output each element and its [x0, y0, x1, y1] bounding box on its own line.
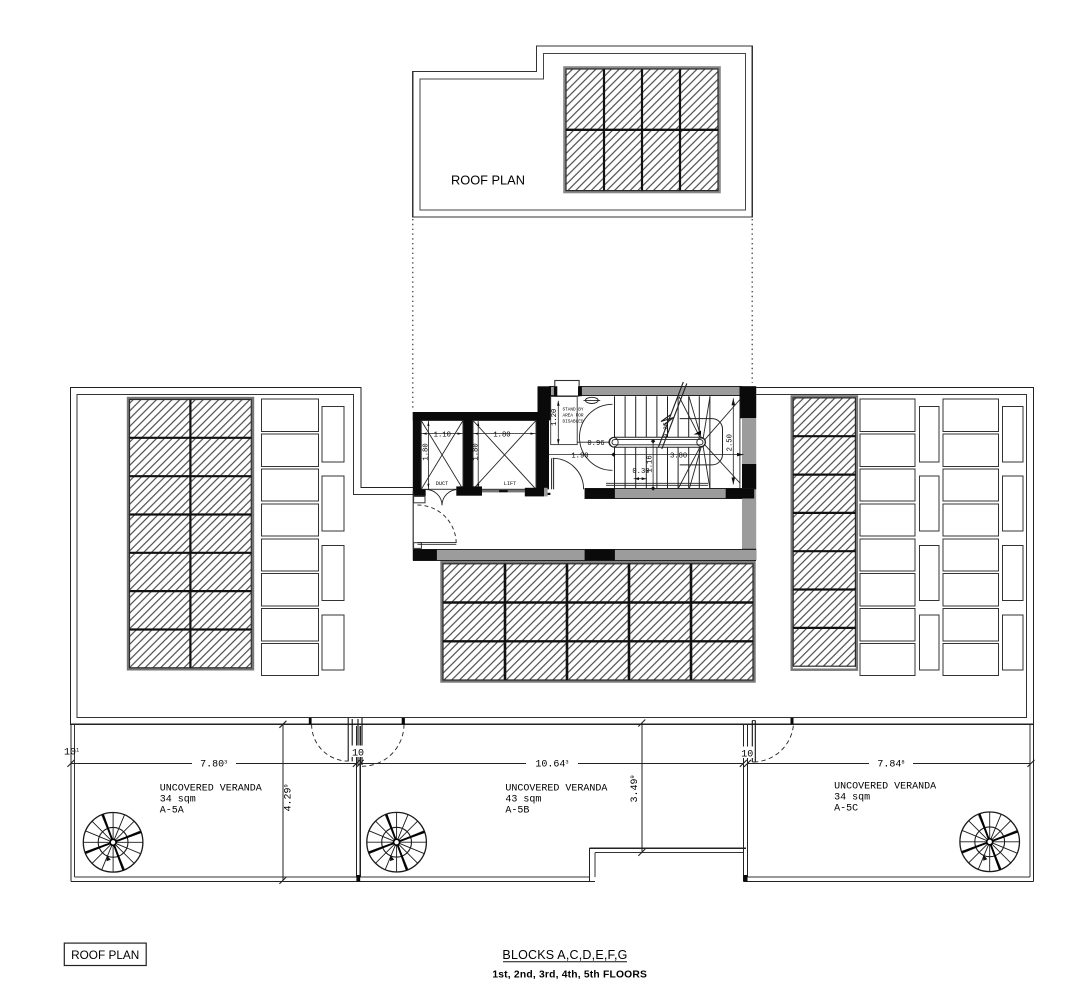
svg-text:10.643: 10.643: [535, 760, 568, 771]
svg-text:UNCOVERED VERANDA: UNCOVERED VERANDA: [505, 783, 607, 794]
svg-text:1.90: 1.90: [571, 452, 588, 460]
svg-text:UNCOVERED VERANDA: UNCOVERED VERANDA: [834, 781, 936, 792]
svg-text:A-5B: A-5B: [505, 806, 529, 817]
svg-text:3.499: 3.499: [630, 775, 641, 802]
svg-text:UNCOVERED VERANDA: UNCOVERED VERANDA: [160, 783, 262, 794]
svg-text:1.80: 1.80: [472, 443, 480, 460]
svg-text:10: 10: [741, 749, 753, 760]
svg-text:1st, 2nd, 3rd, 4th, 5th FLOORS: 1st, 2nd, 3rd, 4th, 5th FLOORS: [492, 970, 647, 981]
svg-text:A-5C: A-5C: [834, 804, 858, 815]
svg-text:2.50: 2.50: [727, 434, 735, 451]
svg-text:BLOCKS A,C,D,E,F,G: BLOCKS A,C,D,E,F,G: [502, 948, 627, 962]
svg-text:AREA FOR: AREA FOR: [562, 414, 583, 419]
svg-text:34 sqm: 34 sqm: [160, 794, 196, 805]
svg-text:1.20: 1.20: [551, 409, 559, 426]
svg-text:0.25: 0.25: [663, 422, 670, 438]
svg-text:0.30: 0.30: [632, 468, 649, 476]
svg-text:0.96: 0.96: [587, 440, 604, 448]
svg-text:ROOF PLAN: ROOF PLAN: [71, 948, 139, 962]
svg-text:3.80: 3.80: [670, 452, 687, 460]
svg-text:DISABLED: DISABLED: [562, 420, 583, 425]
svg-text:1.80: 1.80: [493, 431, 510, 439]
svg-text:ROOF PLAN: ROOF PLAN: [451, 173, 525, 188]
svg-text:1.10: 1.10: [434, 431, 451, 439]
svg-text:43 sqm: 43 sqm: [505, 794, 541, 805]
svg-text:7.803: 7.803: [200, 760, 227, 771]
svg-text:LIFT: LIFT: [504, 481, 516, 487]
svg-text:STAND BY: STAND BY: [562, 408, 583, 413]
svg-text:7.848: 7.848: [877, 760, 904, 771]
svg-text:A-5A: A-5A: [160, 806, 184, 817]
svg-text:DUCT: DUCT: [436, 481, 448, 487]
svg-text:1.80: 1.80: [423, 443, 431, 460]
svg-text:4.299: 4.299: [283, 784, 294, 811]
svg-text:34 sqm: 34 sqm: [834, 792, 870, 803]
svg-text:10: 10: [352, 749, 364, 760]
